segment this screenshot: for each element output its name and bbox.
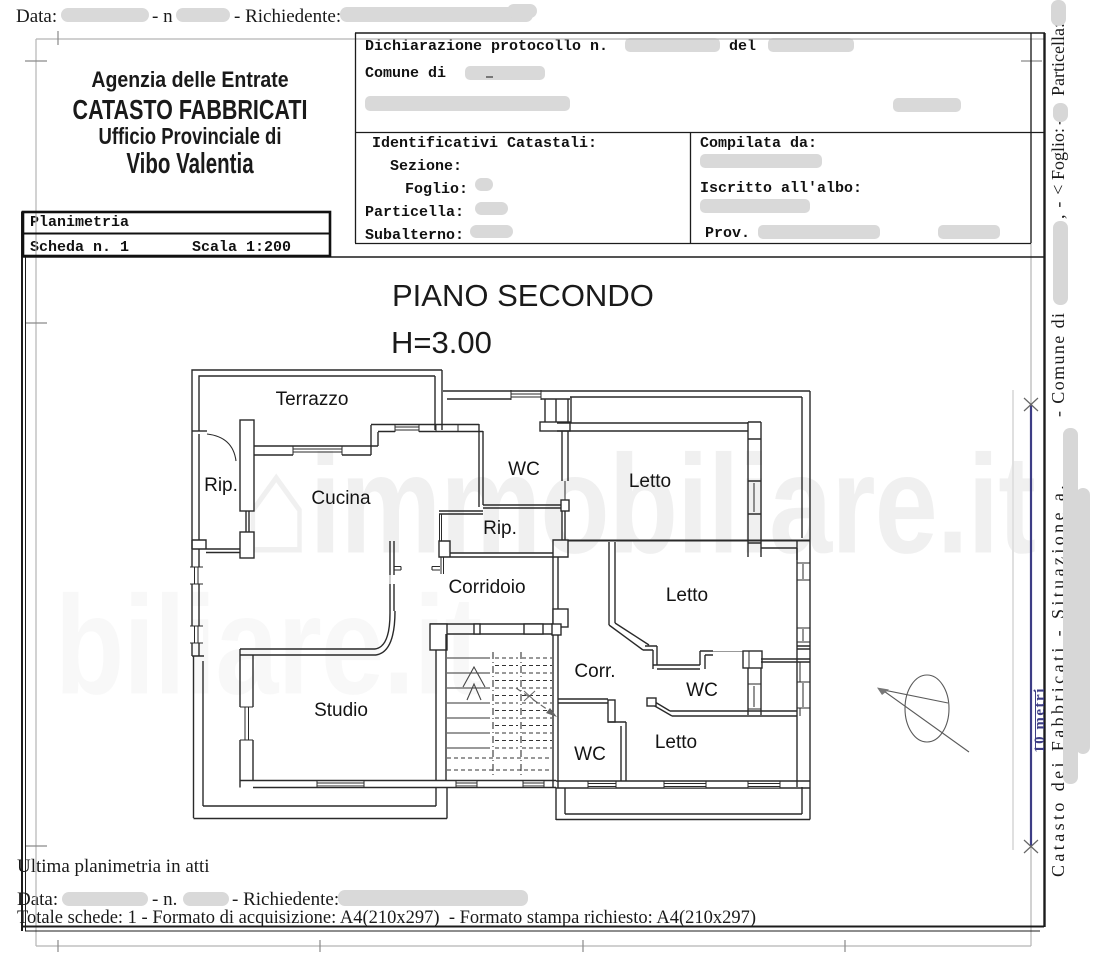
svg-text:10 metri: 10 metri: [1032, 687, 1048, 753]
svg-text:Particella:: Particella:: [1048, 23, 1068, 96]
svg-text:Foglio:: Foglio:: [1048, 128, 1068, 180]
svg-text:- Comune di: - Comune di: [1048, 312, 1068, 417]
svg-text:, - <: , - <: [1048, 183, 1068, 219]
